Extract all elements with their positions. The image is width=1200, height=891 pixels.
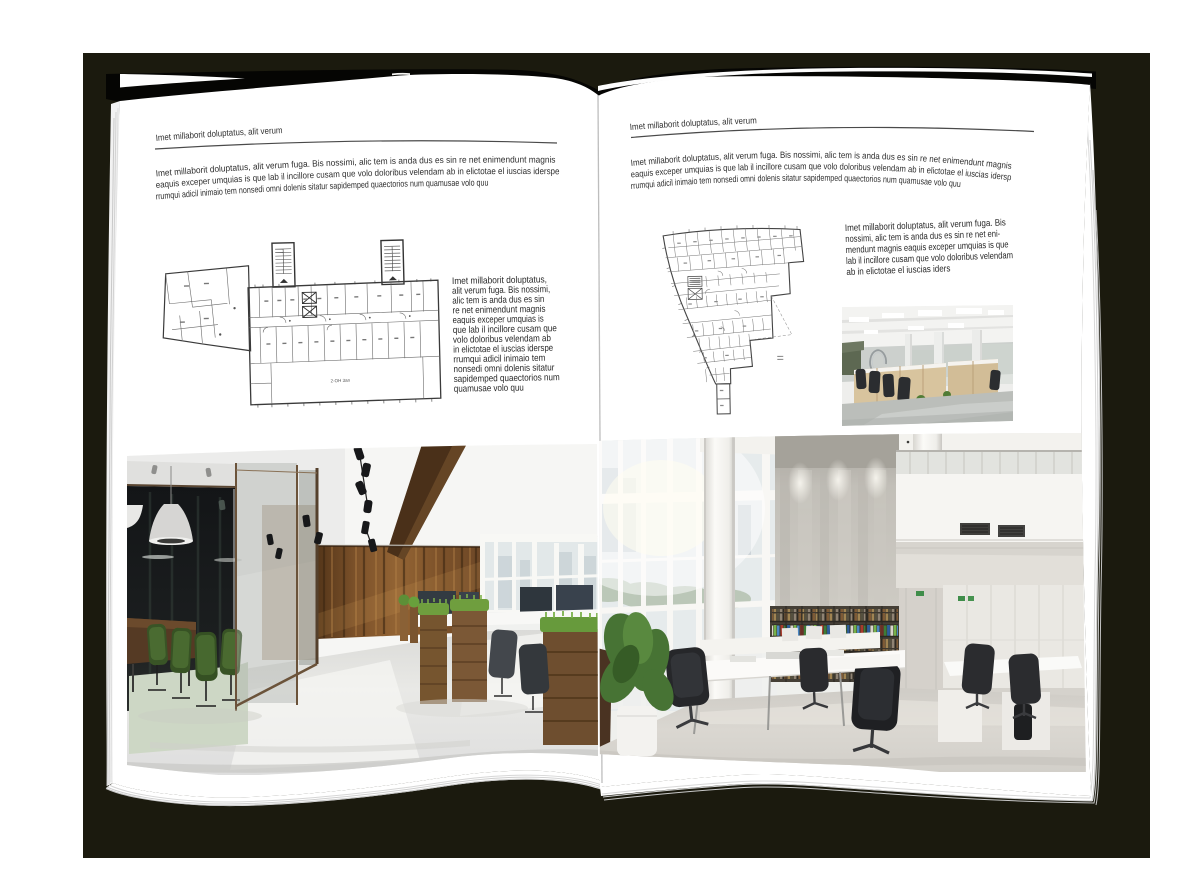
svg-text:quamusae volo quu: quamusae volo quu: [454, 382, 524, 394]
svg-text:2-OH 3an: 2-OH 3an: [330, 378, 350, 384]
